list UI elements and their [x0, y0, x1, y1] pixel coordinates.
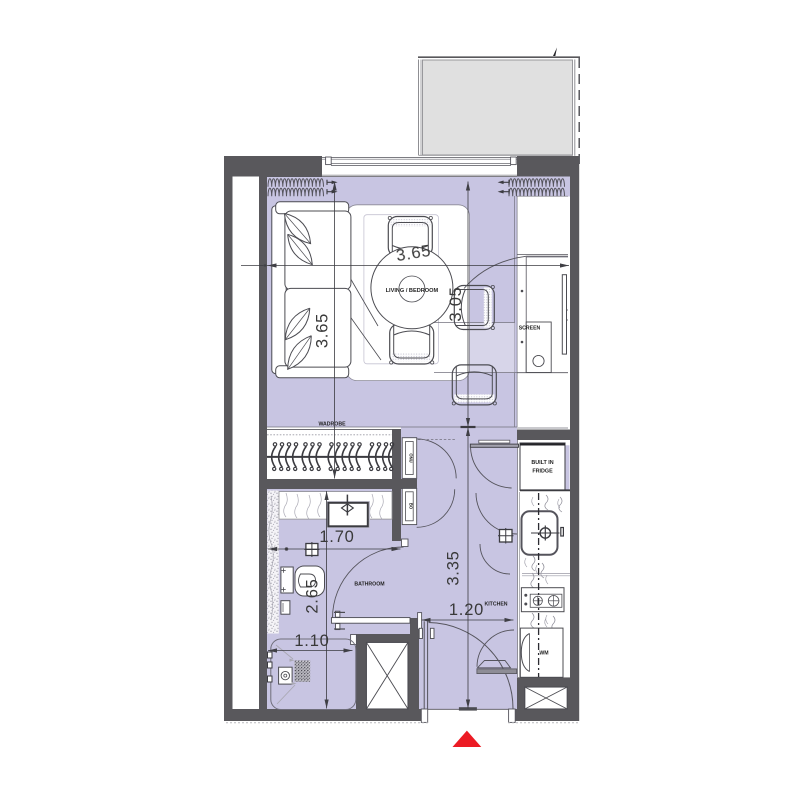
- svg-text:FRIDGE: FRIDGE: [532, 469, 553, 475]
- svg-text:3.05: 3.05: [447, 286, 465, 321]
- svg-text:WADROBE: WADROBE: [318, 422, 346, 428]
- svg-text:3.35: 3.35: [445, 550, 463, 585]
- svg-text:KITCHEN: KITCHEN: [484, 602, 507, 608]
- svg-text:LIVING / BEDROOM: LIVING / BEDROOM: [386, 288, 439, 294]
- svg-text:ONU: ONU: [409, 453, 414, 462]
- svg-text:1.20: 1.20: [449, 601, 484, 619]
- svg-text:SCREEN: SCREEN: [519, 326, 541, 332]
- svg-text:2.65: 2.65: [304, 578, 322, 613]
- svg-text:1.70: 1.70: [319, 528, 354, 546]
- svg-text:3.65: 3.65: [314, 313, 332, 348]
- svg-text:BO: BO: [409, 503, 414, 510]
- svg-text:BUILT IN: BUILT IN: [531, 460, 553, 466]
- svg-text:BATHROOM: BATHROOM: [354, 581, 384, 587]
- svg-text:1.10: 1.10: [294, 632, 329, 650]
- svg-text:WM: WM: [539, 651, 548, 657]
